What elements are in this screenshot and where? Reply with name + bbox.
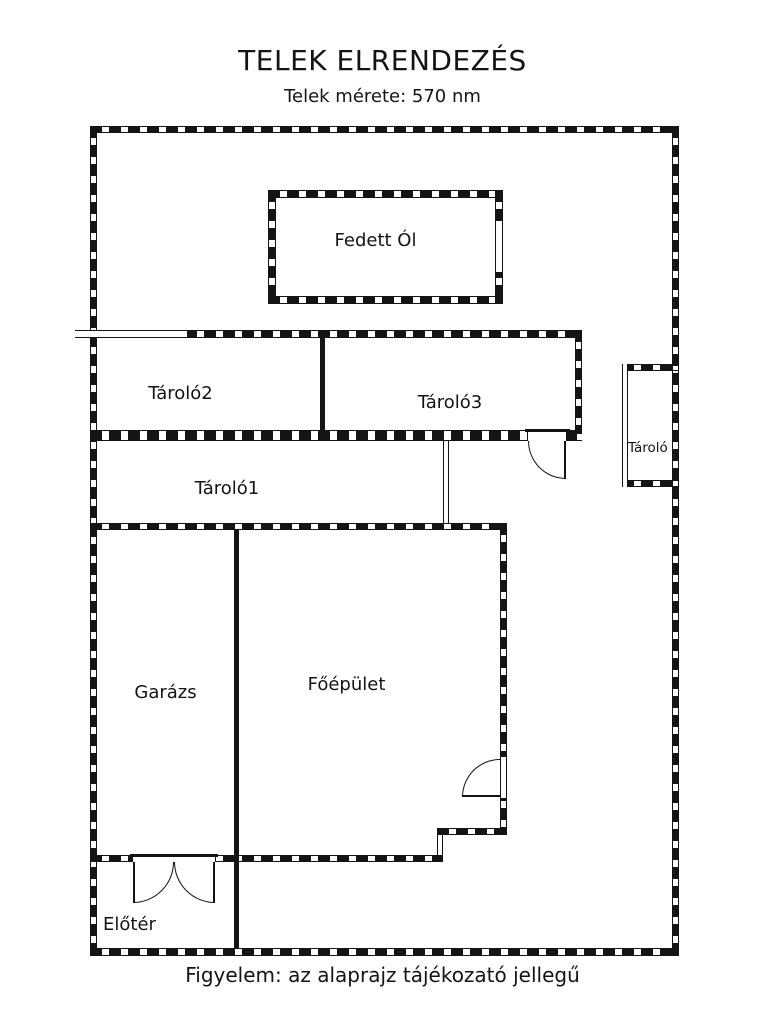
disclaimer-note: Figyelem: az alaprajz tájékozató jellegű [0, 963, 765, 987]
storage-band-open-segment [94, 330, 187, 338]
room-garazs: Garázs [97, 530, 234, 855]
fedett-ol-opening [495, 224, 503, 272]
room-eloter: Előtér [97, 862, 234, 948]
room-label-foepulet: Főépület [308, 674, 386, 695]
room-label-tarolo3: Tároló3 [418, 392, 483, 413]
room-foepulet: Főépület [239, 530, 500, 855]
tarolo-kicsi-wall-top [622, 364, 679, 371]
tarolo3-door-swing-arc [528, 441, 566, 479]
fedett-ol-wall-top [268, 190, 503, 198]
plot-boundary-bottom [90, 948, 679, 956]
plot-size-subtitle: Telek mérete: 570 nm [0, 86, 765, 107]
tarolo1-wall-right [443, 441, 449, 523]
plot-boundary-right [672, 126, 679, 956]
room-tarolo2: Tároló2 [97, 338, 320, 430]
plot-boundary-top [90, 126, 679, 133]
room-label-tarolo-kicsi: Tároló [628, 440, 668, 456]
room-label-eloter: Előtér [103, 914, 156, 935]
room-tarolo-kicsi: Tároló [628, 371, 672, 480]
plot-boundary-left [90, 126, 97, 956]
page-title: TELEK ELRENDEZÉS [0, 44, 765, 77]
main-building-wall-top [90, 523, 507, 530]
fedett-ol-wall-bottom [268, 296, 503, 304]
room-label-tarolo2: Tároló2 [148, 383, 213, 404]
storage-band-wall-right [575, 330, 582, 434]
fedett-ol-wall-left [268, 190, 276, 304]
room-fedett-ol: Fedett Ól [276, 198, 495, 296]
room-tarolo3: Tároló3 [325, 338, 575, 430]
tarolo-kicsi-wall-bottom [622, 480, 679, 487]
room-label-garazs: Garázs [134, 682, 196, 703]
floorplan-page: TELEK ELRENDEZÉS Telek mérete: 570 nm Fe… [0, 0, 765, 1024]
room-tarolo1: Tároló1 [97, 441, 443, 523]
room-label-tarolo1: Tároló1 [195, 478, 260, 499]
foepulet-door-opening [500, 757, 507, 798]
storage-band-left-tab [75, 330, 95, 338]
tarolo3-door-leaf [564, 441, 566, 479]
room-label-fedett-ol: Fedett Ól [335, 230, 417, 251]
storage-band-wall-bottom [90, 430, 582, 441]
